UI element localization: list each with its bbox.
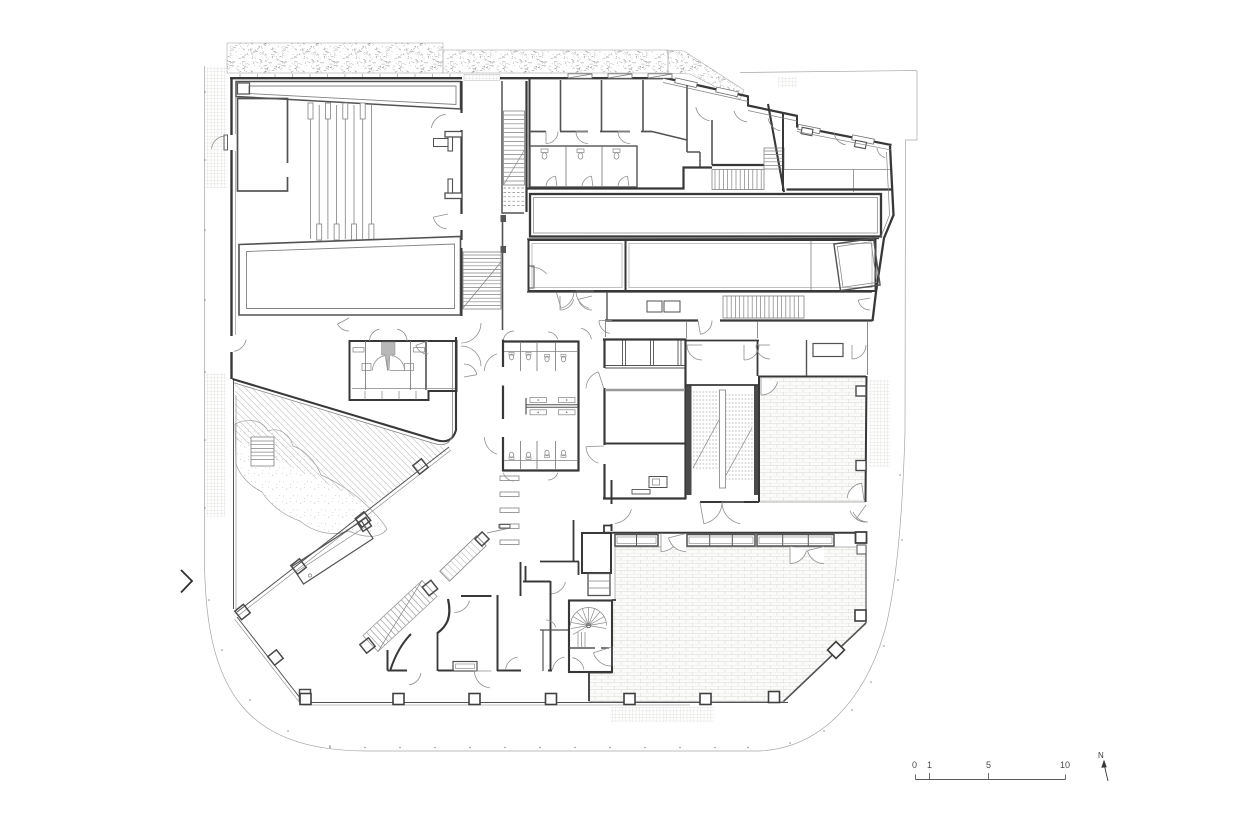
- svg-text:10: 10: [1060, 760, 1070, 770]
- svg-text:N: N: [1098, 751, 1104, 760]
- svg-text:1: 1: [927, 760, 932, 770]
- svg-text:5: 5: [986, 760, 991, 770]
- svg-text:0: 0: [912, 760, 917, 770]
